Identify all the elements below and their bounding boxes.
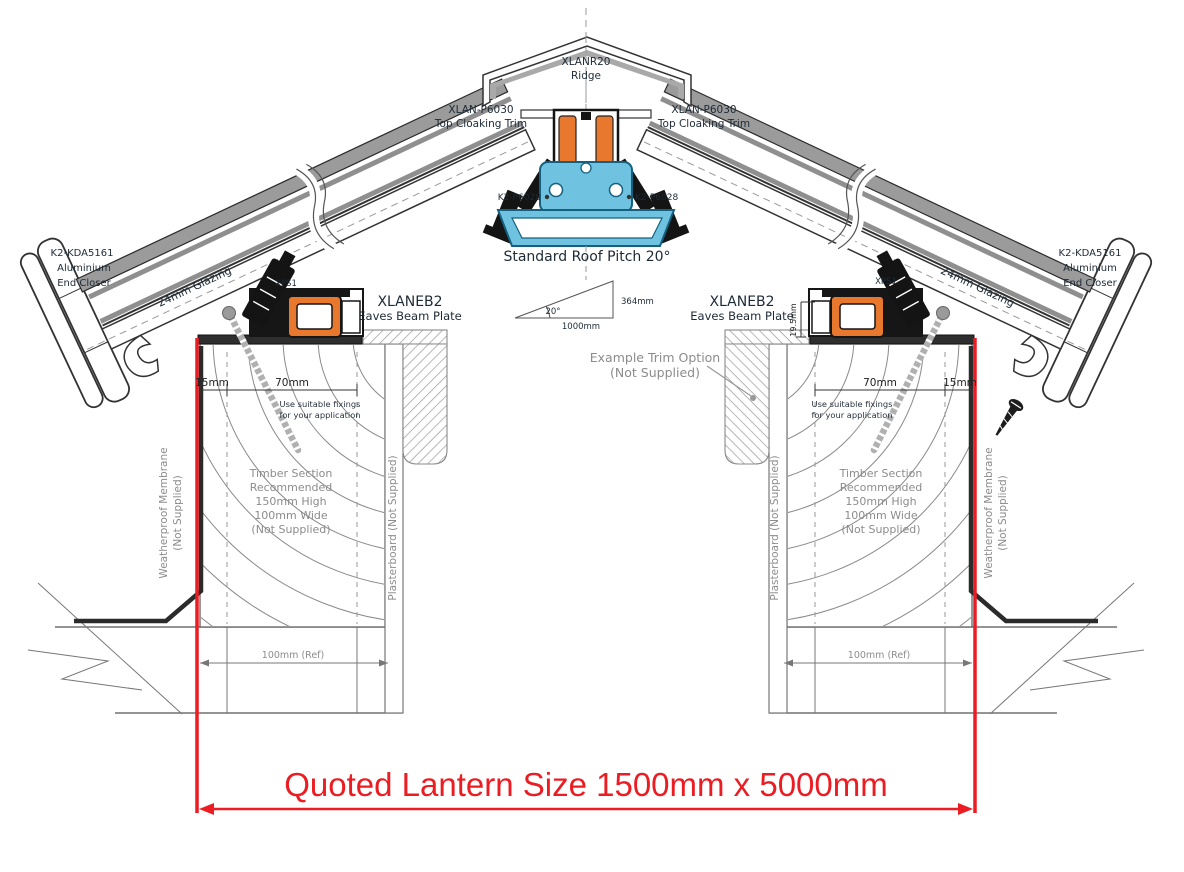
timber-l1-right: Timber Section — [839, 467, 923, 480]
end-closer-l2-right: Aluminium — [1063, 263, 1117, 274]
eaves-code-right: XLANEB2 — [709, 294, 774, 310]
timber-l5-left: (Not Supplied) — [251, 523, 330, 536]
fixings-l2-left: for your application — [279, 410, 360, 420]
lantern-section-drawing: XLANR20 Ridge XLAN-P6030 Top Cloaking Tr… — [0, 0, 1184, 872]
membrane-l2-left: (Not Supplied) — [172, 475, 184, 551]
roof-pitch-label: Standard Roof Pitch 20° — [503, 249, 670, 265]
trim-option-l2: (Not Supplied) — [610, 365, 700, 380]
xps1-label-right: XPS1 — [875, 277, 897, 287]
timber-l3-right: 150mm High — [845, 495, 916, 508]
pitch-angle-label: 20° — [545, 307, 560, 317]
top-cloaking-name-right: Top Cloaking Trim — [657, 118, 750, 130]
pitch-base-label: 1000mm — [562, 322, 600, 332]
ref100-left: 100mm (Ref) — [262, 650, 324, 661]
end-closer-l3-left: End Closer — [57, 278, 111, 289]
timber-l5-right: (Not Supplied) — [841, 523, 920, 536]
timber-l4-right: 100mm Wide — [844, 509, 918, 522]
quoted-size-label: Quoted Lantern Size 1500mm x 5000mm — [284, 766, 888, 803]
top-cloaking-code-right: XLAN-P6030 — [671, 104, 736, 116]
dim70-left: 70mm — [275, 377, 309, 389]
dim70-right: 70mm — [863, 377, 897, 389]
plasterboard-label-right: Plasterboard (Not Supplied) — [769, 455, 781, 600]
membrane-l1-right: Weatherproof Membrane — [983, 447, 995, 578]
k2-p6028-label-right: K2-P6028 — [635, 193, 678, 203]
end-closer-code-left: K2-KDA5161 — [51, 248, 114, 259]
membrane-l1-left: Weatherproof Membrane — [158, 447, 170, 578]
timber-l2-right: Recommended — [840, 481, 923, 494]
plasterboard-label-left: Plasterboard (Not Supplied) — [387, 455, 399, 600]
timber-l2-left: Recommended — [250, 481, 333, 494]
membrane-l2-right: (Not Supplied) — [997, 475, 1009, 551]
pitch-triangle — [515, 281, 613, 318]
end-closer-code-right: K2-KDA5161 — [1059, 248, 1122, 259]
dim15-left: 15mm — [195, 377, 229, 389]
trim-option-l1: Example Trim Option — [590, 350, 720, 365]
top-cloaking-name-left: Top Cloaking Trim — [434, 118, 527, 130]
dim15-right: 15mm — [943, 377, 977, 389]
end-closer-l2-left: Aluminium — [57, 263, 111, 274]
fixings-l1-left: Use suitable fixings — [280, 399, 361, 409]
drawing-canvas: XLANR20 Ridge XLAN-P6030 Top Cloaking Tr… — [0, 0, 1184, 872]
ridge-code-label: XLANR20 — [562, 56, 611, 68]
pitch-rise-label: 364mm — [621, 297, 654, 307]
timber-l1-left: Timber Section — [249, 467, 333, 480]
fixings-l2-right: for your application — [811, 410, 892, 420]
timber-l3-left: 150mm High — [255, 495, 326, 508]
ref100-right: 100mm (Ref) — [848, 650, 910, 661]
dim19-5-label: 19.5mm — [789, 303, 798, 337]
eaves-name-right: Eaves Beam Plate — [690, 309, 793, 323]
xps1-label-left: XPS1 — [275, 279, 297, 289]
timber-l4-left: 100mm Wide — [254, 509, 328, 522]
screw-icon — [990, 396, 1026, 439]
ridge-name-label: Ridge — [571, 70, 601, 82]
eaves-name-left: Eaves Beam Plate — [358, 309, 461, 323]
end-closer-l3-right: End Closer — [1063, 278, 1117, 289]
eaves-code-left: XLANEB2 — [377, 294, 442, 310]
k2-p6028-label-left: K2-P6028 — [498, 193, 541, 203]
top-cloaking-code-left: XLAN-P6030 — [448, 104, 513, 116]
fixings-l1-right: Use suitable fixings — [812, 399, 893, 409]
